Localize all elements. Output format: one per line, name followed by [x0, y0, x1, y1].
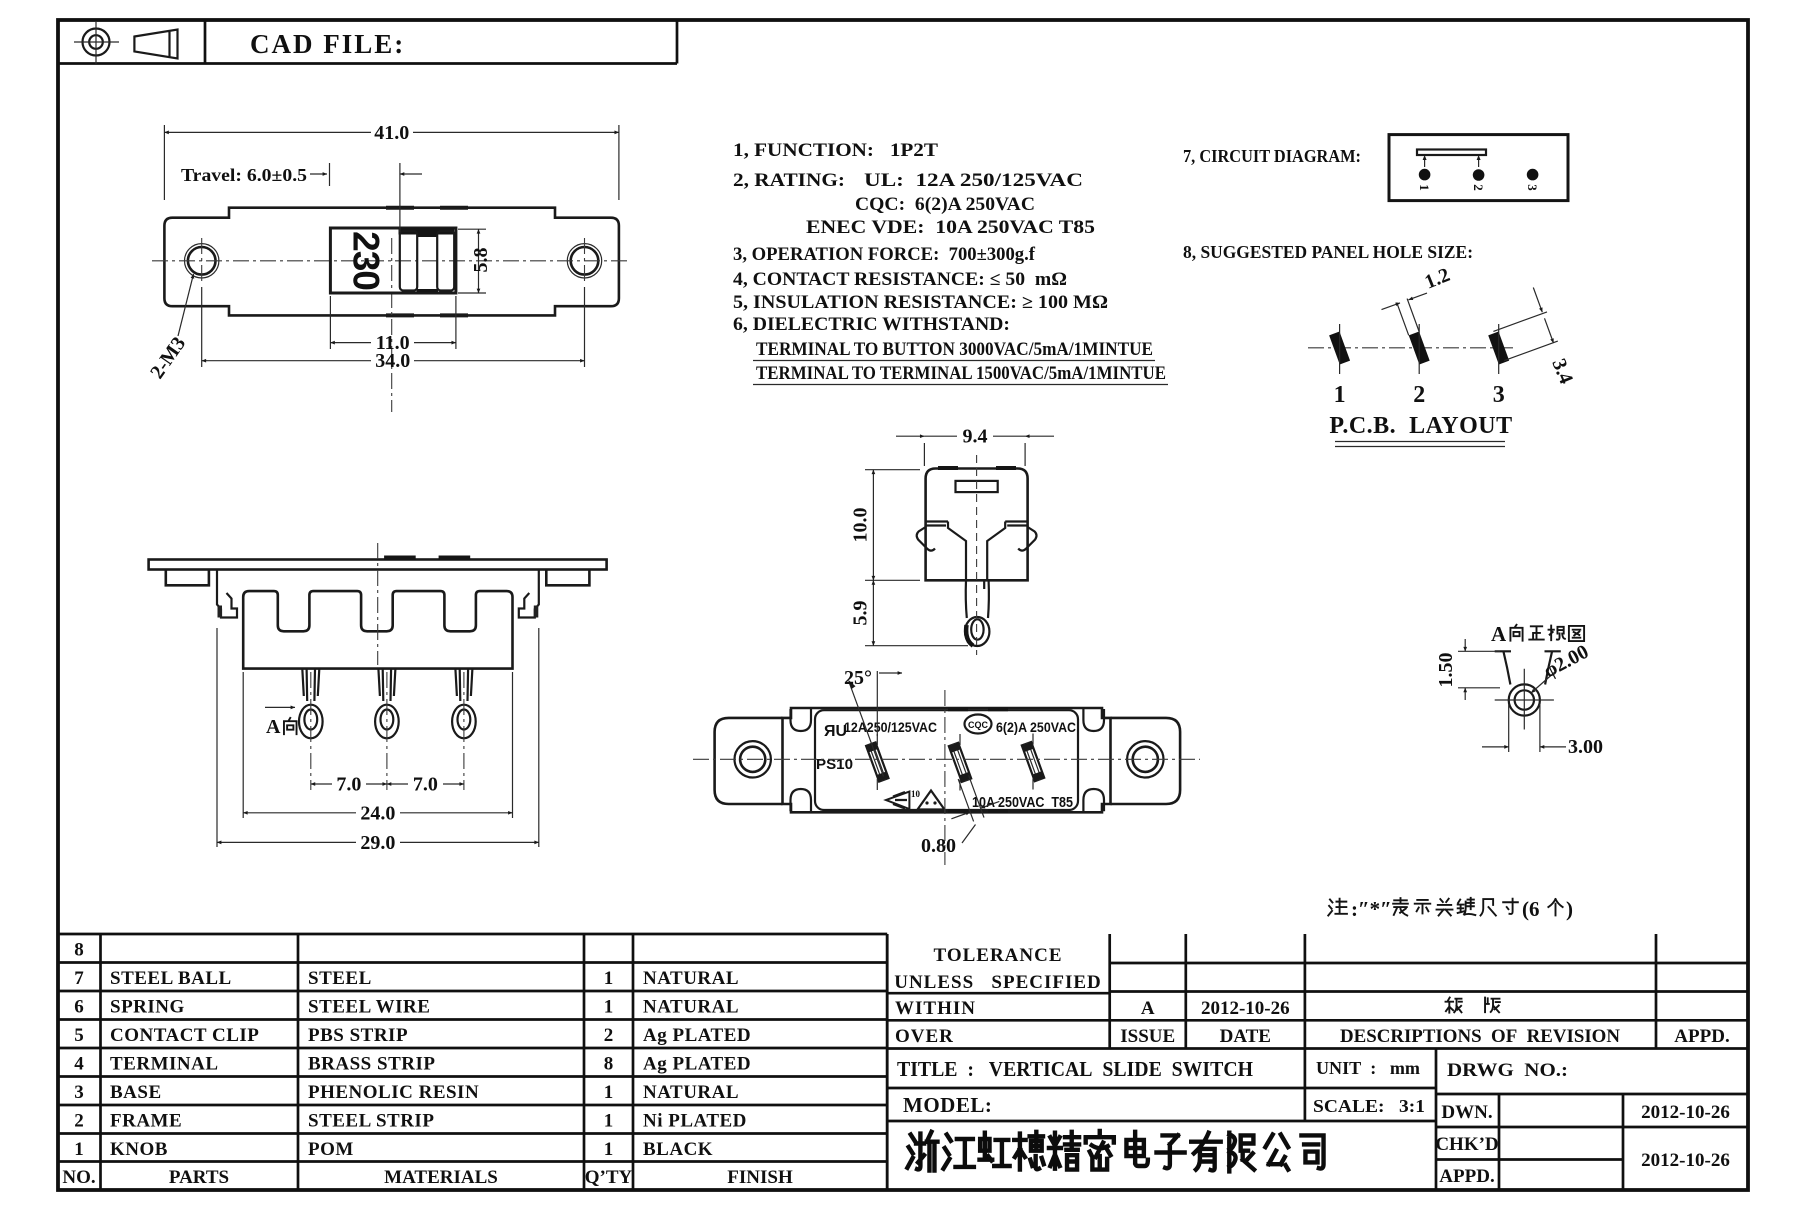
svg-text:3.4: 3.4	[1547, 356, 1577, 387]
svg-text:PBS STRIP: PBS STRIP	[308, 1025, 408, 1046]
svg-text:1: 1	[1417, 184, 1432, 191]
svg-text:UNLESS SPECIFIED: UNLESS SPECIFIED	[894, 972, 1102, 993]
svg-text:3.00: 3.00	[1568, 736, 1603, 758]
svg-text:1: 1	[604, 1139, 614, 1160]
svg-text:MATERIALS: MATERIALS	[384, 1167, 498, 1188]
svg-text:CQC: 6(2)A 250VAC: CQC: 6(2)A 250VAC	[855, 195, 1035, 215]
svg-text:TOLERANCE: TOLERANCE	[933, 945, 1062, 966]
svg-text:230: 230	[346, 231, 387, 290]
svg-text:12A250/125VAC: 12A250/125VAC	[844, 719, 937, 735]
svg-text:10.0: 10.0	[850, 508, 872, 543]
svg-text:8, SUGGESTED PANEL HOLE SIZE:: 8, SUGGESTED PANEL HOLE SIZE:	[1183, 242, 1473, 262]
svg-text:SPRING: SPRING	[110, 997, 185, 1018]
svg-text:6(2)A 250VAC: 6(2)A 250VAC	[996, 719, 1076, 735]
svg-text:WITHIN: WITHIN	[895, 998, 976, 1019]
svg-text:P.C.B. LAYOUT: P.C.B. LAYOUT	[1329, 413, 1512, 439]
svg-text:6: 6	[74, 997, 84, 1018]
svg-text:TITLE : VERTICAL SLIDE SW: TITLE : VERTICAL SLIDE SWITCH	[897, 1057, 1253, 1081]
svg-text:CAD FILE:: CAD FILE:	[250, 29, 405, 59]
svg-text:STEEL STRIP: STEEL STRIP	[308, 1111, 434, 1132]
svg-text:DESCRIPTIONS OF REVISION: DESCRIPTIONS OF REVISION	[1340, 1026, 1620, 1047]
svg-text:TERMINAL TO TERMINAL 1500VAC/5: TERMINAL TO TERMINAL 1500VAC/5mA/1MINTUE	[756, 364, 1166, 384]
svg-text:STEEL WIRE: STEEL WIRE	[308, 997, 430, 1018]
svg-text:FINISH: FINISH	[727, 1167, 793, 1188]
svg-text:8: 8	[604, 1054, 614, 1075]
svg-text:Q’TY: Q’TY	[585, 1167, 633, 1188]
svg-text:5, INSULATION RESISTANCE: ≥ 10: 5, INSULATION RESISTANCE: ≥ 100 MΩ	[733, 293, 1108, 313]
svg-text:NO.: NO.	[62, 1167, 95, 1188]
svg-text:ISSUE: ISSUE	[1120, 1026, 1175, 1047]
svg-text:DRWG NO.:: DRWG NO.:	[1447, 1060, 1568, 1081]
svg-text:1: 1	[604, 997, 614, 1018]
svg-text:ENEC VDE: 10A 250VAC T85: ENEC VDE: 10A 250VAC T85	[806, 218, 1095, 238]
svg-text:FRAME: FRAME	[110, 1111, 182, 1132]
svg-text:8: 8	[74, 940, 84, 961]
svg-text:PHENOLIC RESIN: PHENOLIC RESIN	[308, 1082, 479, 1103]
svg-text:2012-10-26: 2012-10-26	[1201, 998, 1290, 1019]
svg-text:7.0: 7.0	[336, 774, 361, 796]
svg-text:2-M3: 2-M3	[146, 333, 190, 383]
svg-text:1, FUNCTION: 1P2T: 1, FUNCTION: 1P2T	[733, 141, 939, 161]
svg-text:4, CONTACT RESISTANCE: ≤ 50 m: 4, CONTACT RESISTANCE: ≤ 50 mΩ	[733, 270, 1067, 290]
svg-text:1: 1	[604, 1111, 614, 1132]
svg-text:NATURAL: NATURAL	[643, 1082, 739, 1103]
svg-text:5: 5	[74, 1025, 84, 1046]
svg-text::″*″: :″*″	[1351, 897, 1392, 921]
svg-text:7, CIRCUIT DIAGRAM:: 7, CIRCUIT DIAGRAM:	[1183, 146, 1361, 166]
svg-text:10A 250VAC T85: 10A 250VAC T85	[972, 795, 1073, 811]
svg-text:2012-10-26: 2012-10-26	[1641, 1150, 1730, 1171]
svg-text:TERMINAL: TERMINAL	[110, 1054, 219, 1075]
svg-text:3: 3	[74, 1082, 84, 1103]
svg-text:CQC: CQC	[968, 720, 989, 730]
svg-text:24.0: 24.0	[360, 802, 395, 824]
svg-text:6, DIELECTRIC WITHSTAND:: 6, DIELECTRIC WITHSTAND:	[733, 315, 1010, 335]
svg-text:2: 2	[74, 1111, 84, 1132]
svg-text:Ag PLATED: Ag PLATED	[643, 1025, 751, 1046]
svg-text:1.2: 1.2	[1422, 264, 1453, 294]
svg-text:5.9: 5.9	[850, 601, 872, 626]
svg-text:1.50: 1.50	[1435, 653, 1457, 688]
svg-text:BRASS STRIP: BRASS STRIP	[308, 1054, 435, 1075]
svg-text:2, RATING:: 2, RATING:	[733, 171, 845, 191]
svg-text:APPD.: APPD.	[1674, 1026, 1729, 1047]
svg-text:A: A	[1141, 998, 1155, 1019]
svg-text:CONTACT CLIP: CONTACT CLIP	[110, 1025, 259, 1046]
svg-text:7.0: 7.0	[413, 774, 438, 796]
svg-text:34.0: 34.0	[375, 350, 410, 372]
svg-text:Travel: 6.0±0.5: Travel: 6.0±0.5	[181, 165, 307, 185]
svg-text:BASE: BASE	[110, 1082, 162, 1103]
svg-text:Ni PLATED: Ni PLATED	[643, 1111, 747, 1132]
svg-text:STEEL: STEEL	[308, 968, 372, 989]
svg-text:1: 1	[604, 968, 614, 989]
svg-text:9.4: 9.4	[963, 426, 988, 448]
svg-text:DATE: DATE	[1220, 1026, 1271, 1047]
svg-text:CHK’D: CHK’D	[1435, 1134, 1498, 1155]
svg-text:2012-10-26: 2012-10-26	[1641, 1102, 1730, 1123]
svg-text:41.0: 41.0	[374, 122, 409, 144]
svg-text:STEEL BALL: STEEL BALL	[110, 968, 232, 989]
svg-text:UNIT : mm: UNIT : mm	[1316, 1058, 1420, 1078]
svg-text:1: 1	[604, 1082, 614, 1103]
svg-text:OVER: OVER	[895, 1026, 954, 1047]
svg-text:10: 10	[911, 789, 921, 799]
svg-text:TERMINAL TO BUTTON 3000VAC/5mA: TERMINAL TO BUTTON 3000VAC/5mA/1MINTUE	[756, 340, 1153, 360]
svg-text:A: A	[1491, 622, 1507, 646]
svg-text:POM: POM	[308, 1139, 354, 1160]
svg-text:MODEL:: MODEL:	[903, 1093, 992, 1117]
svg-text:3: 3	[1525, 184, 1540, 191]
svg-text:3: 3	[1493, 382, 1505, 408]
svg-text:Ag PLATED: Ag PLATED	[643, 1054, 751, 1075]
svg-text:2: 2	[604, 1025, 614, 1046]
svg-text:29.0: 29.0	[360, 832, 395, 854]
svg-text:): )	[1566, 897, 1573, 921]
svg-text:APPD.: APPD.	[1439, 1166, 1494, 1187]
svg-text:(6: (6	[1522, 897, 1540, 921]
svg-text:PS10: PS10	[816, 756, 853, 773]
svg-text:3, OPERATION FORCE: 700±300g.: 3, OPERATION FORCE: 700±300g.f	[733, 245, 1036, 265]
svg-text:SCALE: 3:1: SCALE: 3:1	[1313, 1096, 1425, 1116]
svg-text:PARTS: PARTS	[169, 1167, 229, 1188]
svg-text:BLACK: BLACK	[643, 1139, 713, 1160]
svg-text:φ2.00: φ2.00	[1540, 641, 1592, 683]
svg-text:2: 2	[1471, 184, 1486, 191]
svg-text:2: 2	[1413, 382, 1425, 408]
svg-text:A: A	[266, 716, 281, 738]
svg-text:5.8: 5.8	[470, 248, 492, 273]
svg-text:DWN.: DWN.	[1441, 1102, 1492, 1123]
svg-text:NATURAL: NATURAL	[643, 997, 739, 1018]
svg-text:0.80: 0.80	[921, 835, 956, 857]
svg-text:NATURAL: NATURAL	[643, 968, 739, 989]
svg-text:1: 1	[1334, 382, 1346, 408]
svg-text:UL: 12A 250/125VAC: UL: 12A 250/125VAC	[864, 171, 1083, 191]
svg-text:KNOB: KNOB	[110, 1139, 168, 1160]
svg-text:1: 1	[74, 1139, 84, 1160]
svg-text:7: 7	[74, 968, 84, 989]
svg-text:25°: 25°	[844, 667, 872, 689]
svg-text:4: 4	[74, 1054, 84, 1075]
